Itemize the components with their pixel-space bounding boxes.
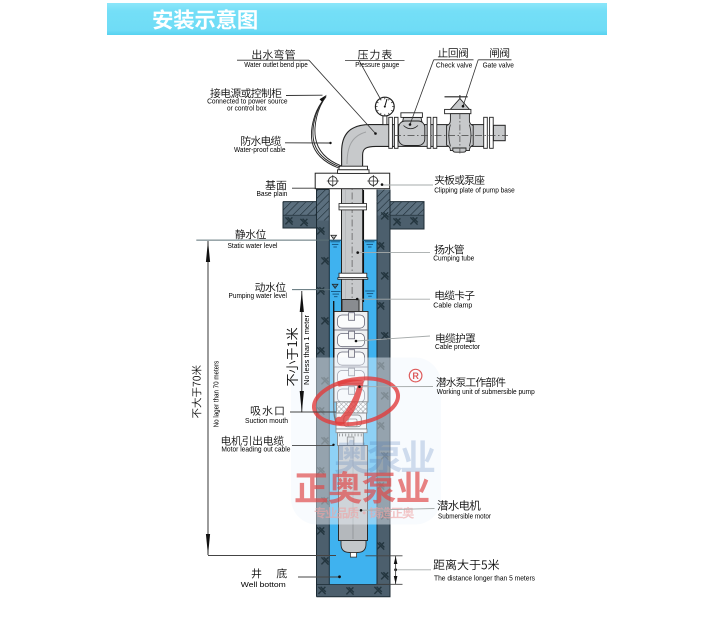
svg-text:Check valve: Check valve	[436, 61, 473, 70]
svg-text:Motor leading out cable: Motor leading out cable	[221, 445, 290, 454]
svg-text:No less than 1 meter: No less than 1 meter	[302, 314, 311, 385]
svg-text:Cable clamp: Cable clamp	[433, 300, 472, 309]
svg-text:or control box: or control box	[227, 104, 267, 113]
svg-text:The distance longer than 5 met: The distance longer than 5 meters	[434, 574, 535, 583]
svg-text:Gate valve: Gate valve	[483, 60, 514, 69]
svg-text:No lager than 70 meters: No lager than 70 meters	[212, 360, 221, 427]
svg-text:Water-proof cable: Water-proof cable	[234, 145, 286, 154]
svg-text:Cumping tube: Cumping tube	[433, 254, 474, 263]
svg-text:Cable protector: Cable protector	[435, 342, 481, 351]
svg-text:Static water level: Static water level	[228, 241, 278, 250]
svg-text:Suction mouth: Suction mouth	[245, 416, 288, 425]
svg-text:Working unit of submersible pu: Working unit of submersible pump	[437, 387, 535, 396]
svg-text:Clipping plate of pump base: Clipping plate of pump base	[434, 185, 515, 194]
svg-text:Pressure gauge: Pressure gauge	[355, 60, 399, 69]
svg-text:Water outlet bend pipe: Water outlet bend pipe	[244, 60, 307, 69]
svg-text:Submersible motor: Submersible motor	[438, 511, 492, 520]
svg-text:R: R	[412, 371, 419, 381]
svg-text:Well bottom: Well bottom	[241, 580, 286, 589]
svg-text:Base plain: Base plain	[257, 189, 288, 198]
svg-text:Pumping water level: Pumping water level	[229, 291, 288, 300]
